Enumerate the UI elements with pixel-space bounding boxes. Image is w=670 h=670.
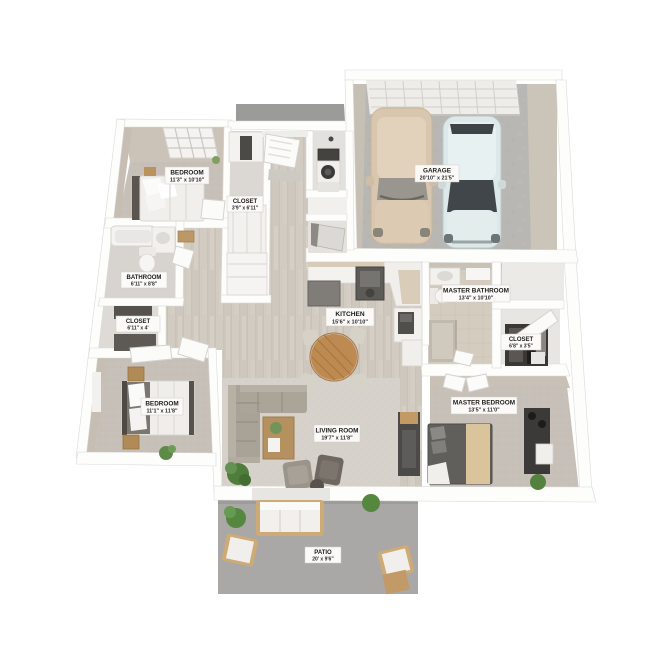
svg-text:BATHROOM: BATHROOM: [127, 275, 162, 281]
svg-text:20' x 9'6": 20' x 9'6": [312, 557, 334, 563]
svg-text:13'5" x 11'0": 13'5" x 11'0": [468, 408, 500, 414]
svg-text:6'11" x 8'8": 6'11" x 8'8": [131, 282, 158, 288]
svg-text:19'7" x 11'8": 19'7" x 11'8": [321, 436, 353, 442]
svg-text:13'4" x 10'10": 13'4" x 10'10": [459, 296, 494, 302]
svg-text:PATIO: PATIO: [314, 550, 332, 556]
svg-text:MASTER BATHROOM: MASTER BATHROOM: [443, 288, 509, 295]
svg-text:BEDROOM: BEDROOM: [170, 170, 203, 177]
svg-text:CLOSET: CLOSET: [509, 337, 534, 343]
svg-text:BEDROOM: BEDROOM: [145, 401, 178, 408]
svg-text:KITCHEN: KITCHEN: [335, 311, 365, 318]
svg-text:GARAGE: GARAGE: [423, 168, 452, 175]
svg-text:6'8" x 3'5": 6'8" x 3'5": [509, 344, 533, 350]
svg-text:11'3" x 10'10": 11'3" x 10'10": [170, 178, 205, 184]
svg-text:15'6" x 10'10": 15'6" x 10'10": [332, 320, 368, 326]
svg-text:MASTER BEDROOM: MASTER BEDROOM: [453, 400, 515, 407]
svg-text:20'10" x 21'5": 20'10" x 21'5": [420, 176, 455, 182]
svg-text:CLOSET: CLOSET: [233, 199, 258, 205]
svg-text:CLOSET: CLOSET: [126, 319, 151, 325]
svg-text:LIVING ROOM: LIVING ROOM: [316, 428, 359, 435]
svg-text:11'1" x 11'8": 11'1" x 11'8": [146, 409, 178, 415]
svg-text:3'9" x 6'11": 3'9" x 6'11": [232, 206, 259, 212]
svg-text:6'11" x 4': 6'11" x 4': [127, 326, 148, 332]
